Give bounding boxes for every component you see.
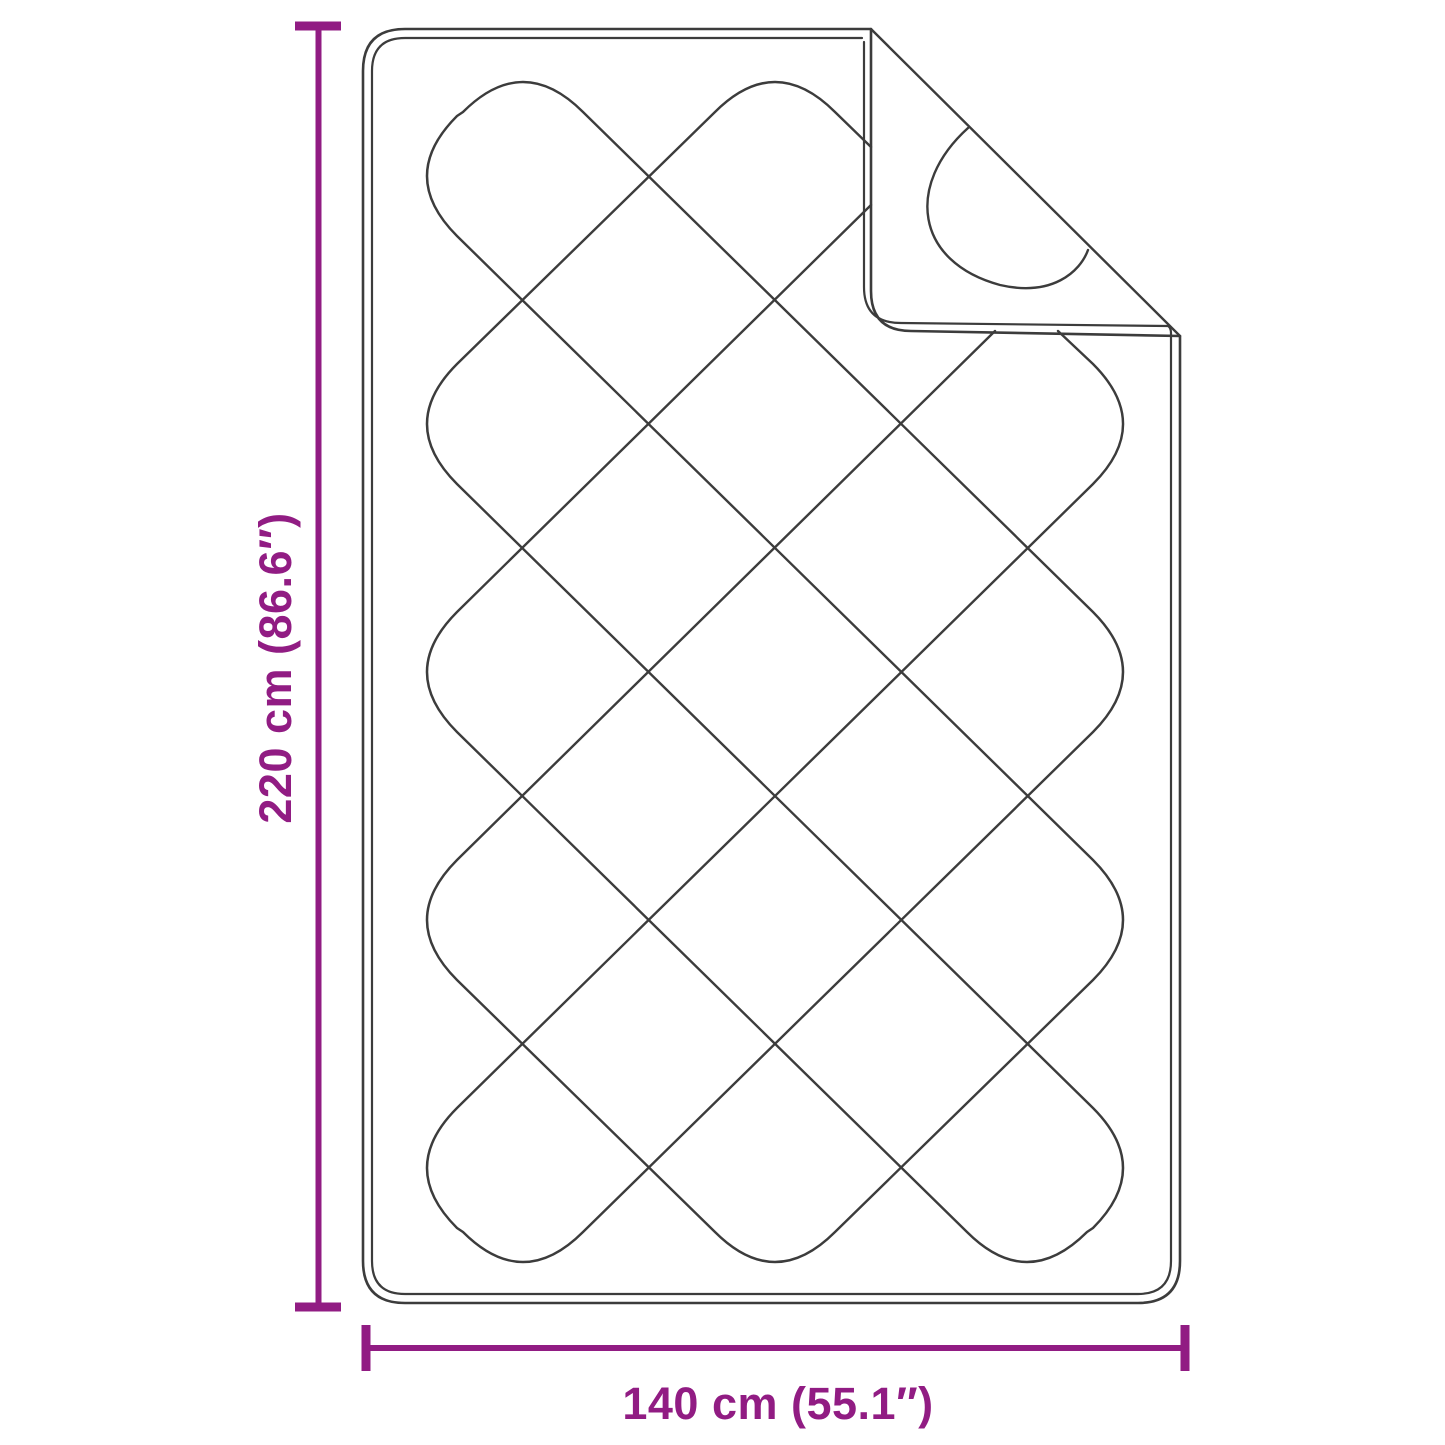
product-dimension-diagram: 220 cm (86.6″) 140 cm (55.1″) <box>0 0 1445 1445</box>
height-dimension-label: 220 cm (86.6″) <box>250 512 301 823</box>
diagram-background <box>0 0 1445 1445</box>
blanket-diagram-svg: 220 cm (86.6″) 140 cm (55.1″) <box>0 0 1445 1445</box>
width-dimension-label: 140 cm (55.1″) <box>622 1378 933 1429</box>
